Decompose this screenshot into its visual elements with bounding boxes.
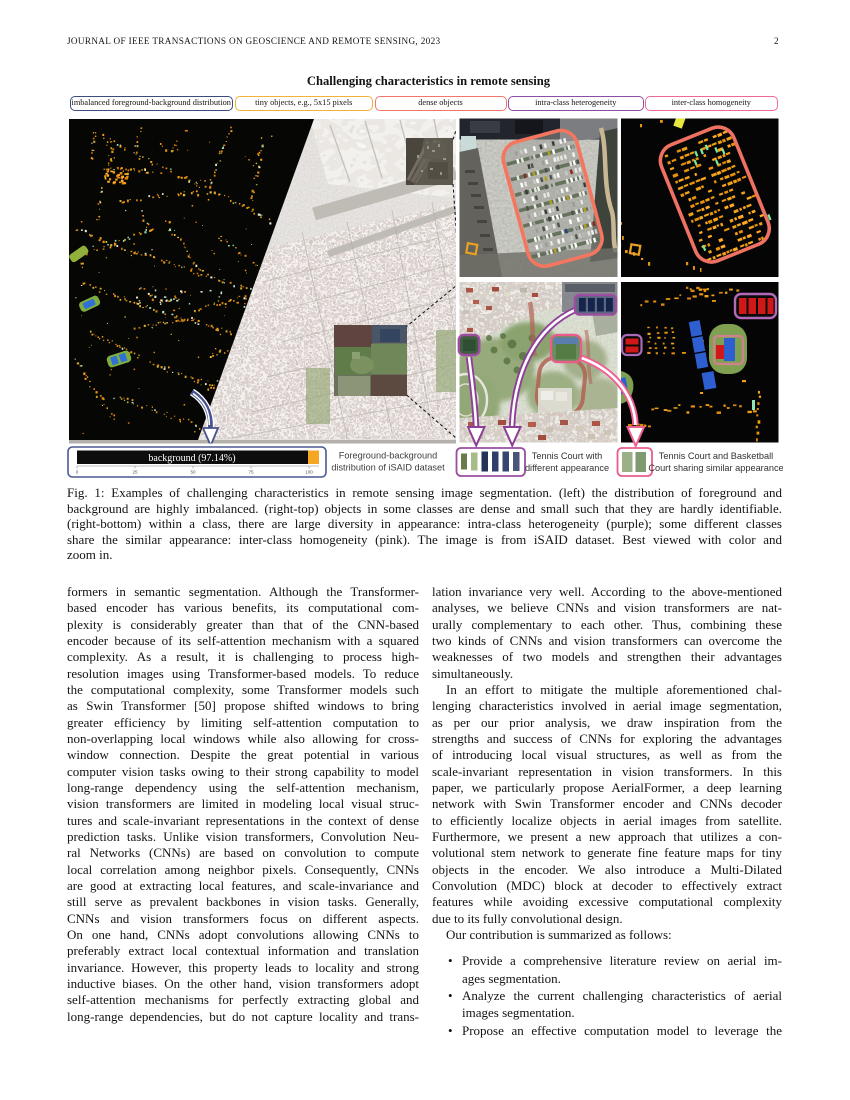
svg-text:Foreground-background: Foreground-background — [339, 451, 438, 461]
svg-text:100: 100 — [305, 470, 313, 475]
svg-text:75: 75 — [248, 470, 254, 475]
svg-text:Tennis Court with: Tennis Court with — [532, 451, 602, 461]
svg-text:25: 25 — [132, 470, 138, 475]
svg-text:Tennis Court and Basketball: Tennis Court and Basketball — [659, 451, 773, 461]
svg-text:0: 0 — [76, 470, 79, 475]
svg-text:background (97.14%): background (97.14%) — [148, 453, 235, 464]
svg-text:different appearance: different appearance — [525, 463, 609, 473]
svg-text:50: 50 — [190, 470, 196, 475]
svg-text:distribution of iSAID dataset: distribution of iSAID dataset — [331, 463, 445, 473]
svg-text:Court sharing similar appearan: Court sharing similar appearance — [648, 463, 783, 473]
